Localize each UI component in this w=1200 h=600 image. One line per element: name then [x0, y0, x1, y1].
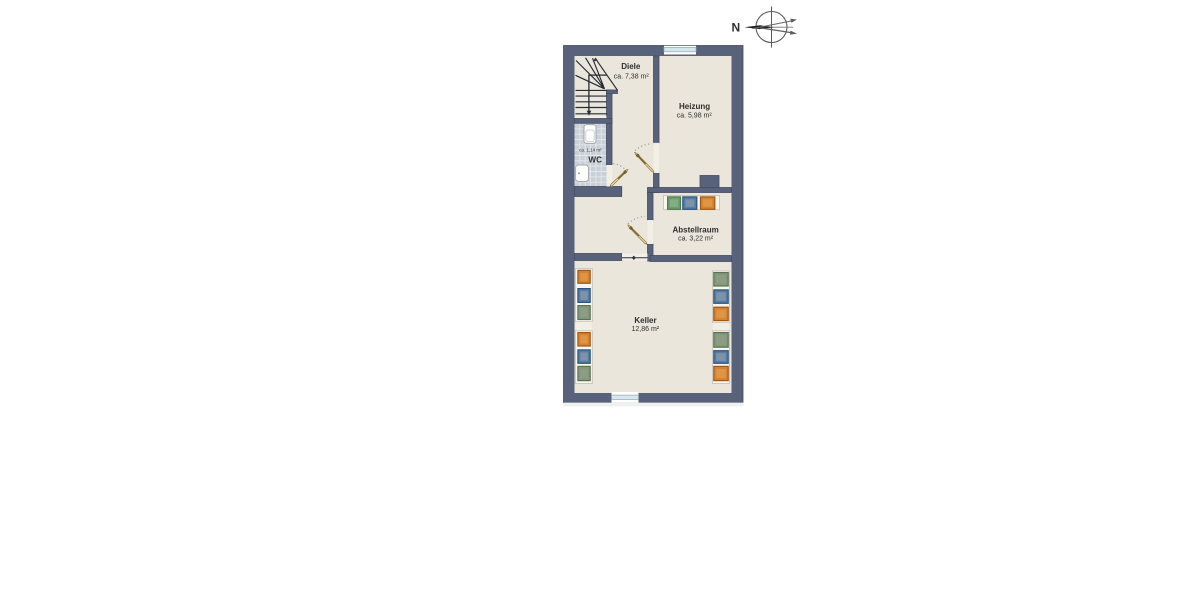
- svg-text:ca. 1,14 m²: ca. 1,14 m²: [579, 147, 602, 152]
- svg-text:ca. 3,22 m²: ca. 3,22 m²: [678, 235, 714, 242]
- svg-text:N: N: [732, 21, 741, 35]
- svg-text:ca. 7,38 m²: ca. 7,38 m²: [614, 73, 650, 80]
- svg-text:Diele: Diele: [621, 62, 641, 71]
- svg-text:ca. 5,98 m²: ca. 5,98 m²: [677, 113, 713, 120]
- svg-text:WC: WC: [588, 155, 602, 164]
- svg-text:Heizung: Heizung: [679, 102, 710, 111]
- svg-text:Keller: Keller: [634, 316, 656, 325]
- svg-text:Abstellraum: Abstellraum: [672, 226, 718, 235]
- svg-text:12,86 m²: 12,86 m²: [631, 326, 659, 333]
